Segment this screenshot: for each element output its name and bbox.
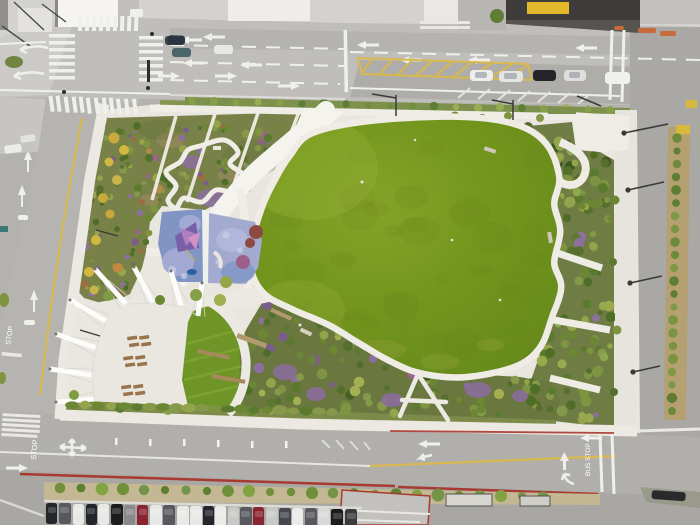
svg-text:BUS STOP: BUS STOP [585,443,592,476]
svg-text:STOP: STOP [29,439,40,460]
